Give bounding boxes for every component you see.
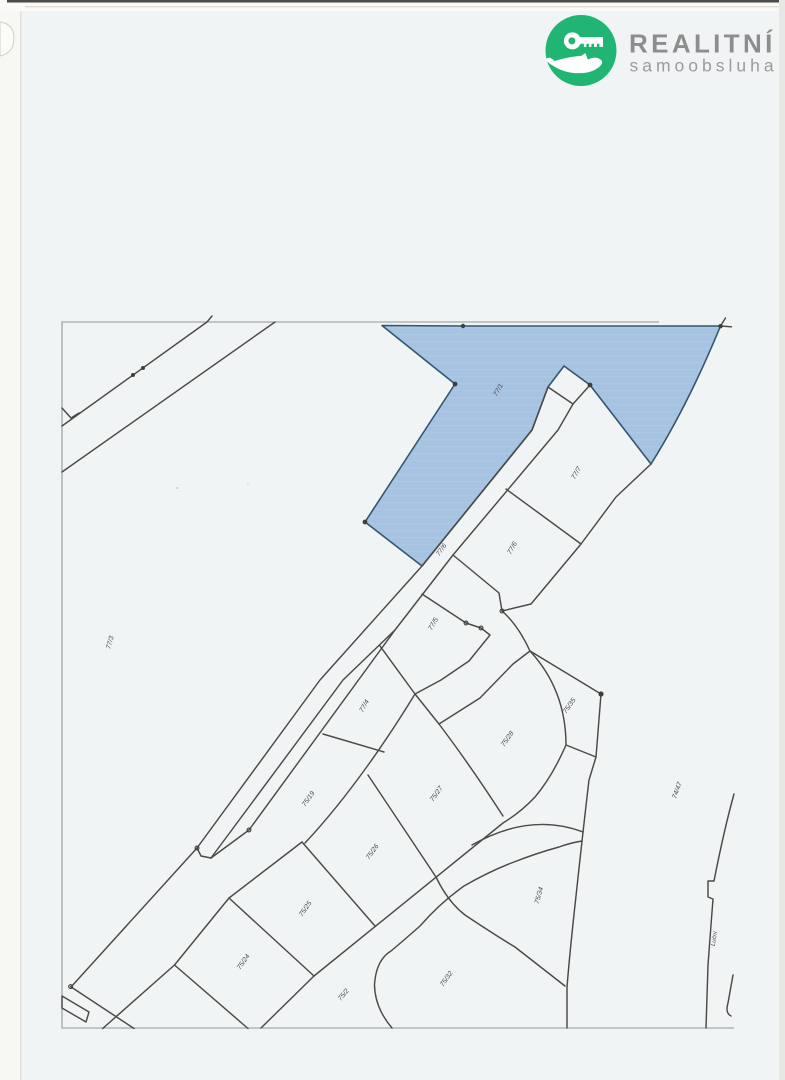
svg-text:REALITNÍ: REALITNÍ: [629, 29, 776, 59]
svg-text:samoobsluha: samoobsluha: [630, 56, 778, 76]
